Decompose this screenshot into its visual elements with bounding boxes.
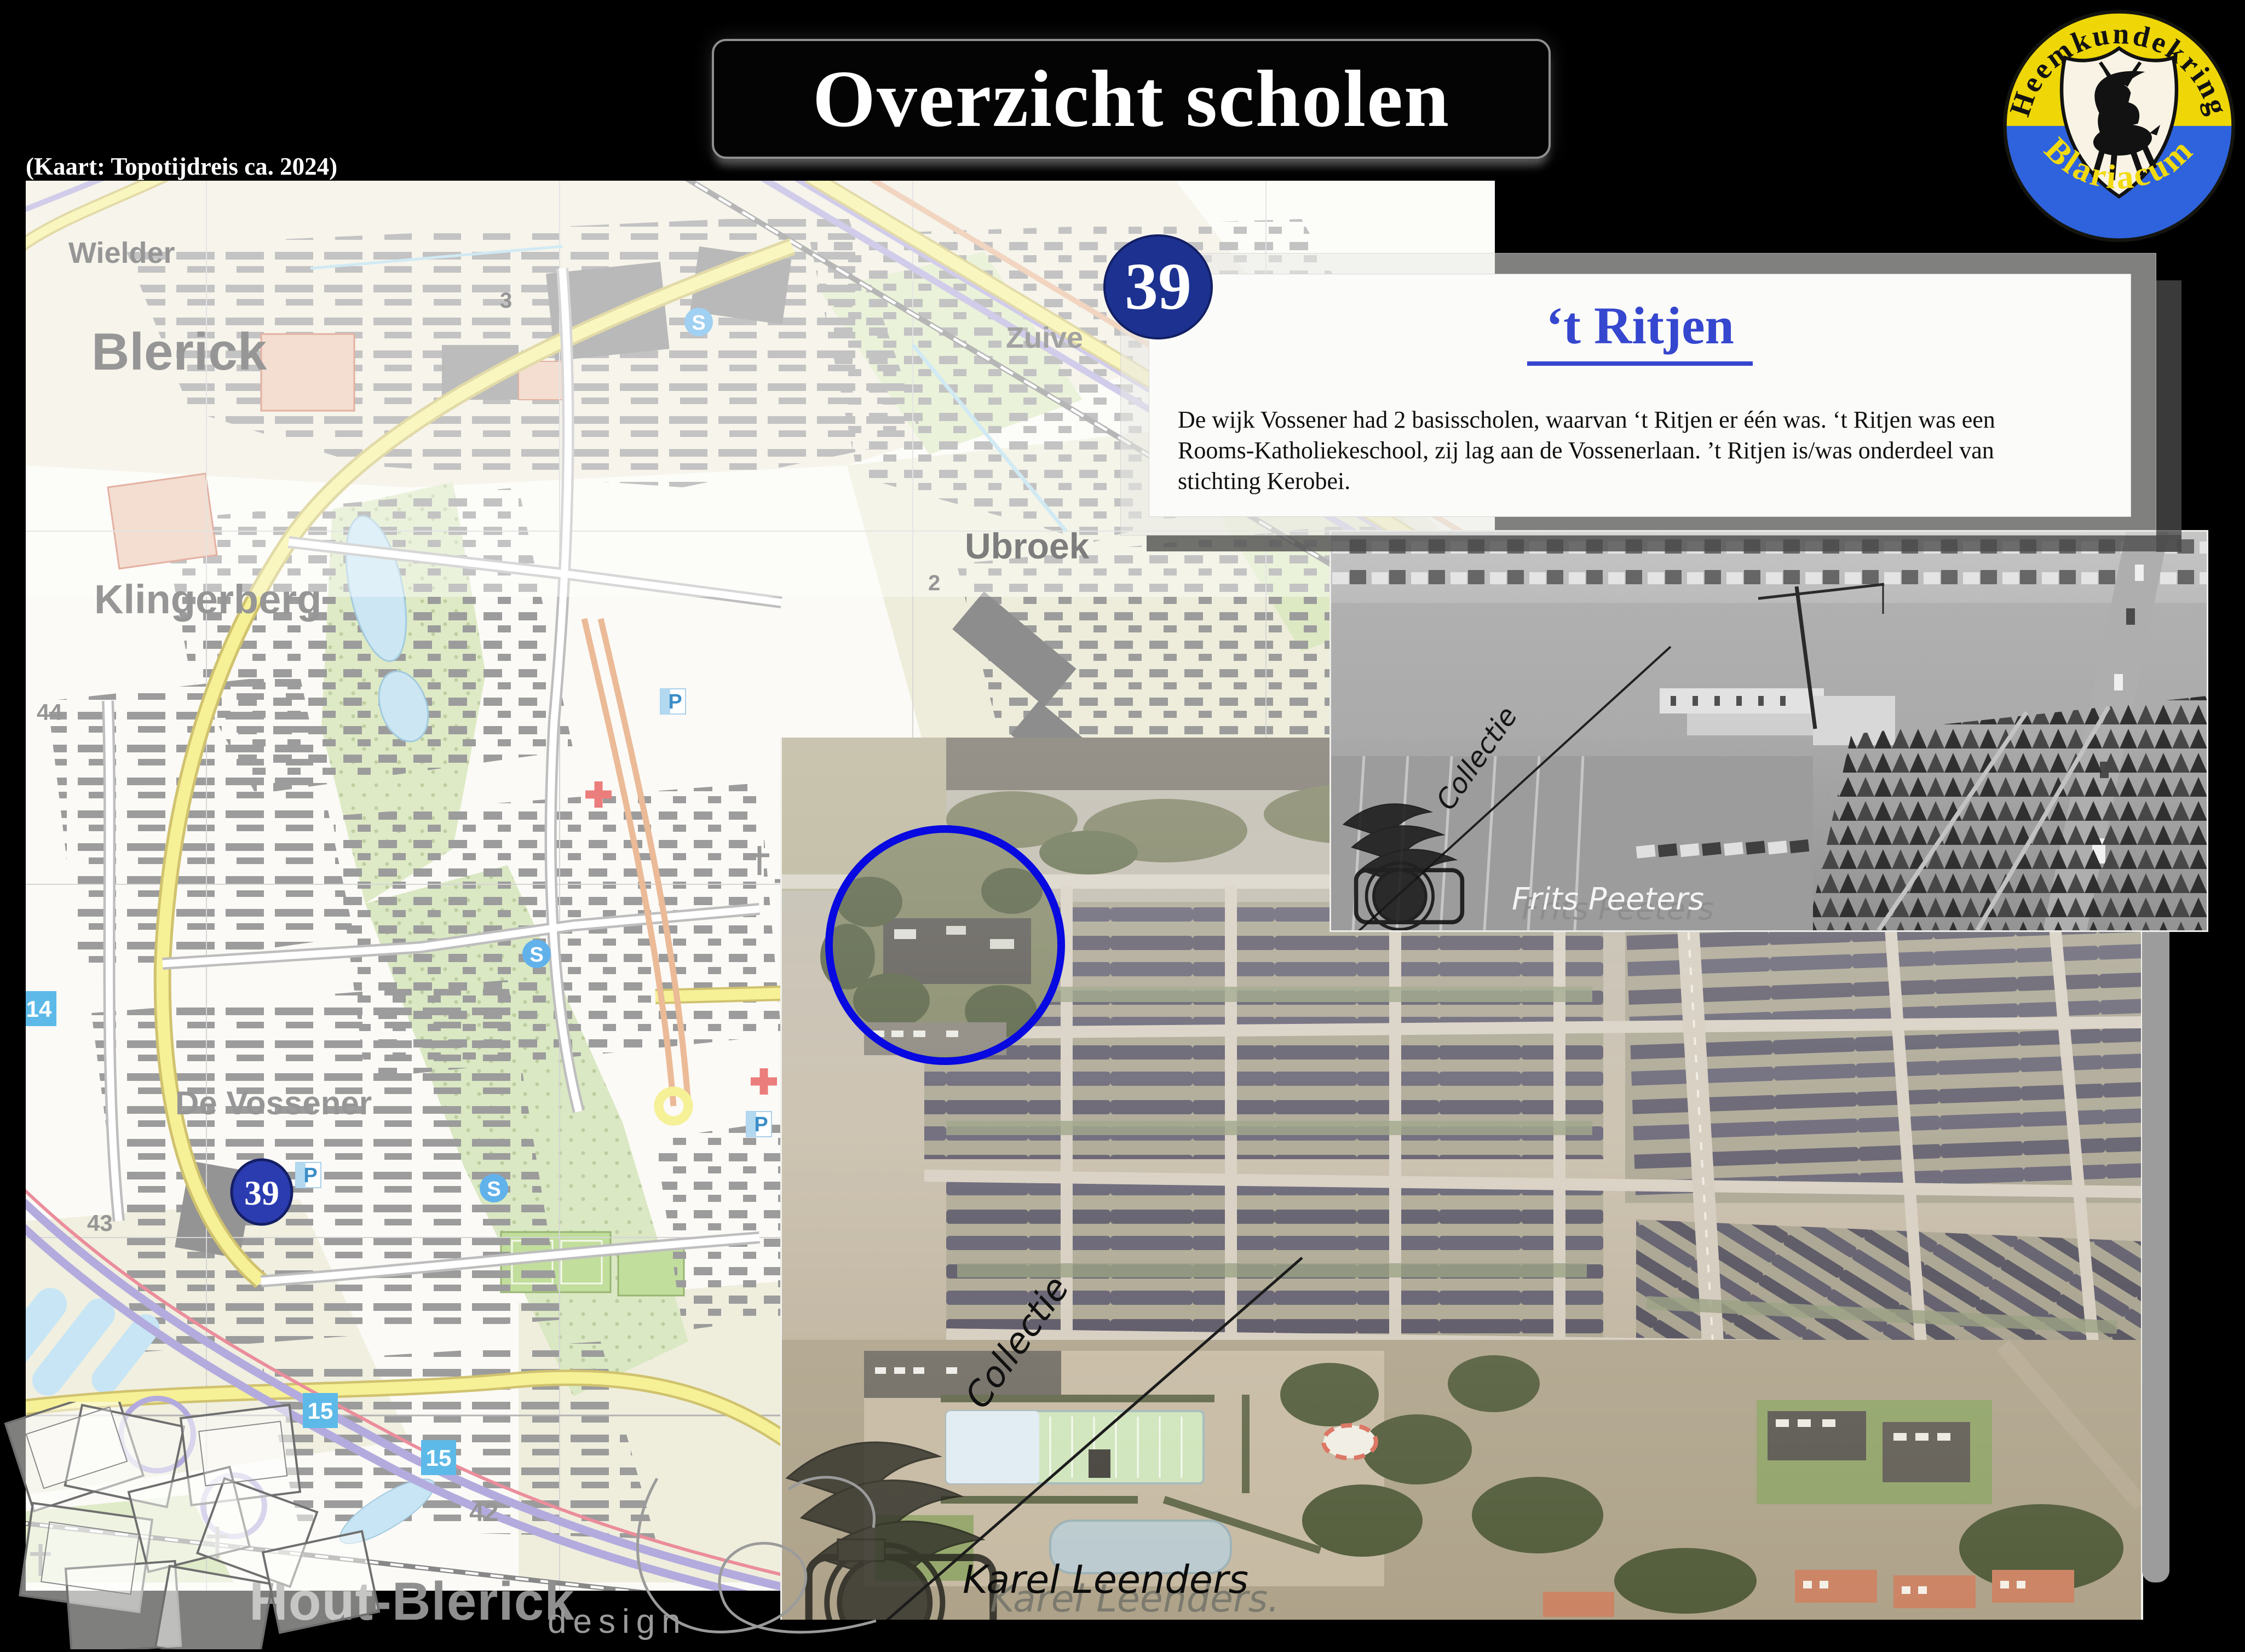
card-title: ‘t Ritjen [1527,295,1753,366]
map-label: Zuive [1006,321,1083,354]
number-badge: 39 [1103,234,1213,339]
info-card: ‘t Ritjen De wijk Vossener had 2 basissc… [1149,274,2131,517]
card-shadow [2156,280,2181,552]
badge-number: 39 [1125,249,1191,325]
card-body-line: De wijk Vossener had 2 basisscholen, waa… [1178,405,2109,435]
svg-text:39: 39 [244,1173,279,1212]
map-credit: (Kaart: Topotijdreis ca. 2024) [26,152,337,181]
map-label: Wielder [68,237,175,269]
map-label: De Vossener [175,1085,372,1121]
map-marker-39: 39 [232,1160,292,1224]
map-label: Blerick [91,323,267,381]
map-number: 3 [500,289,512,313]
page-title: Overzicht scholen [813,53,1450,146]
svg-text:Karel Leenders: Karel Leenders [963,1557,1248,1602]
map-number: 43 [87,1210,113,1236]
bw-aerial-photo: Collectie Frits Peeters Frits Peeters [1329,530,2208,932]
map-number: 44 [37,699,62,725]
card-body-line: Rooms-Katholiekeschool, zij lag aan de V… [1178,435,2109,466]
card-shadow [1147,535,2181,551]
map-label: Klingerberg [94,577,321,622]
polaroid-watermark-cluster [0,1402,383,1652]
map-number: 42 [469,1498,498,1527]
title-box: Overzicht scholen [712,39,1551,159]
map-label: Ubroek [965,526,1090,566]
designer-text: design [548,1602,687,1641]
heemkundekring-blariacum-logo: Heemkundekring Blariacum [2001,8,2237,244]
svg-text:Frits Peeters: Frits Peeters [1512,882,1704,917]
map-number: 2 [928,571,940,595]
photo-shadow-strip [2142,931,2169,1582]
card-body-line: stichting Kerobei. [1178,466,2109,497]
